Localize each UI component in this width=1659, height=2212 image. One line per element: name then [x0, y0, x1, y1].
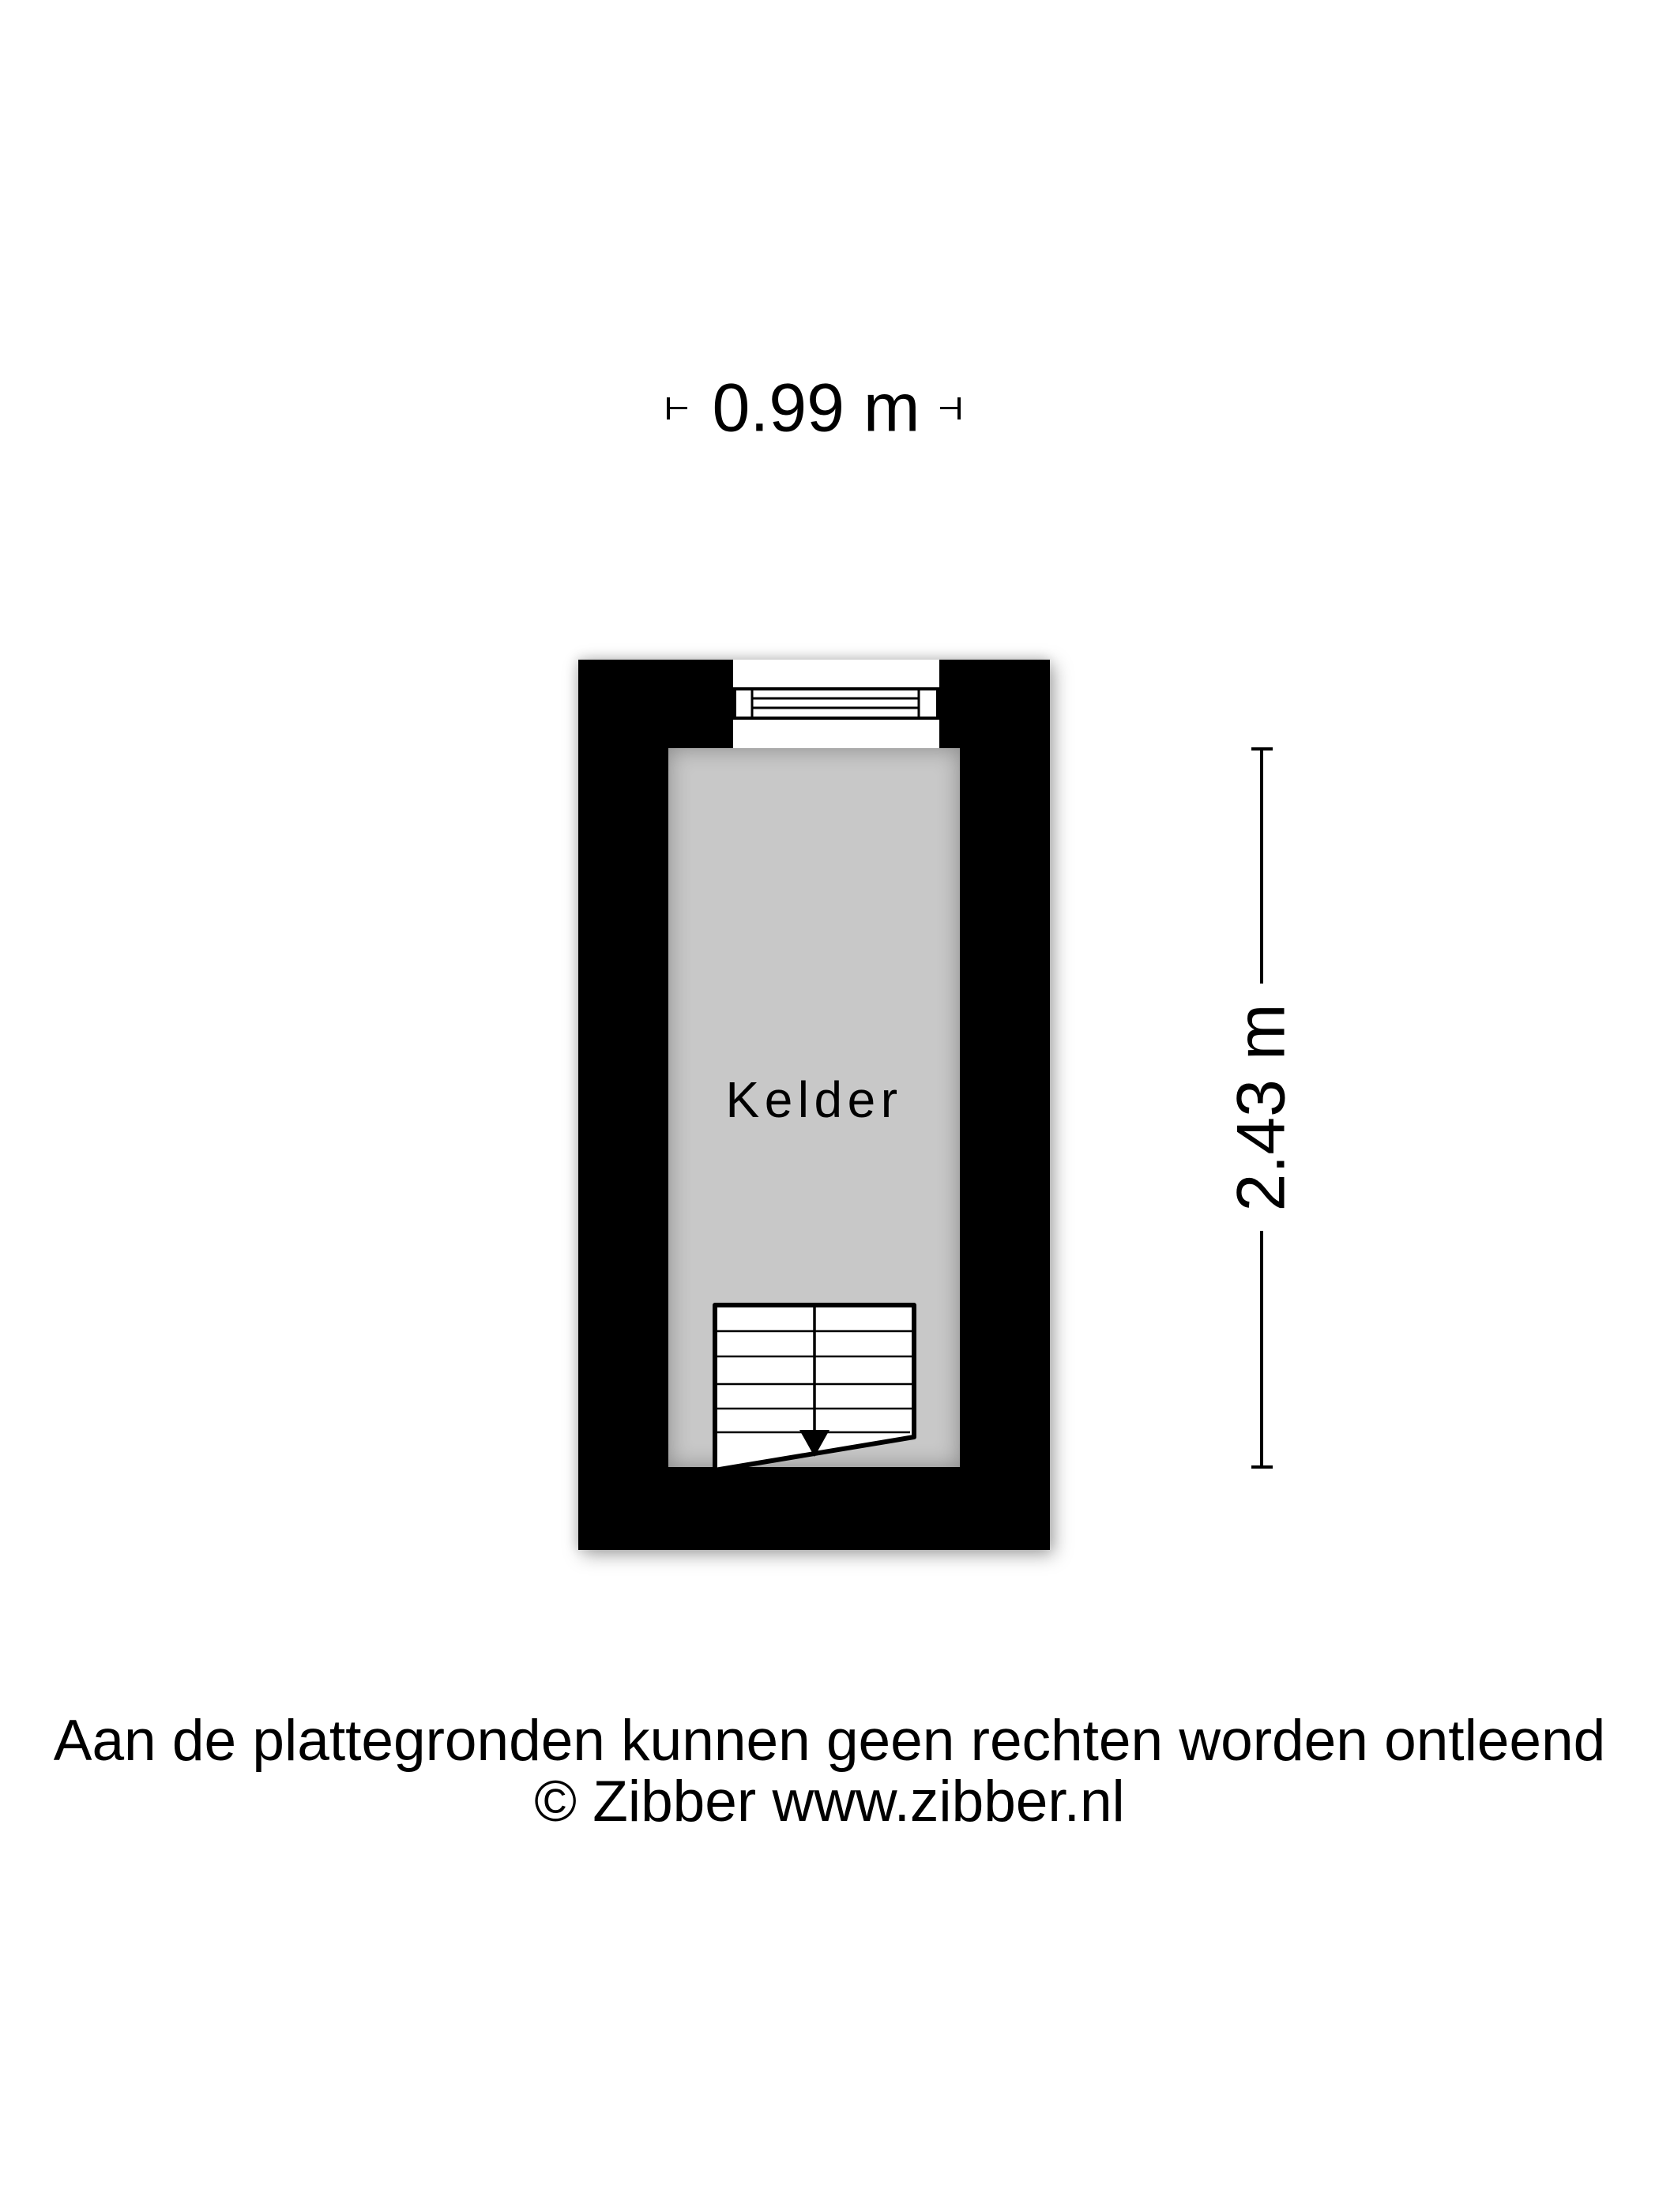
window-icon [733, 660, 939, 748]
floorplan-walls: Kelder [578, 660, 1050, 1550]
dimension-cap-bottom-icon [1251, 1465, 1273, 1469]
dimension-tick-left-icon [667, 397, 670, 419]
floorplan-page: 0.99 m Kelder 2.43 m [0, 0, 1659, 2212]
room-label: Kelder [668, 1070, 960, 1129]
dimension-tick-right-icon [957, 397, 961, 419]
height-dimension-label: 2.43 m [1223, 1004, 1301, 1212]
footer: Aan de plattegronden kunnen geen rechten… [0, 1710, 1659, 1832]
window-opening [733, 660, 939, 748]
copyright-text: © Zibber www.zibber.nl [0, 1771, 1659, 1832]
height-dimension-line-lower [1260, 1231, 1263, 1467]
stairs-icon [712, 1302, 919, 1474]
disclaimer-text: Aan de plattegronden kunnen geen rechten… [0, 1710, 1659, 1771]
width-dimension-label: 0.99 m [713, 370, 920, 448]
height-dimension-line-upper [1260, 749, 1263, 984]
